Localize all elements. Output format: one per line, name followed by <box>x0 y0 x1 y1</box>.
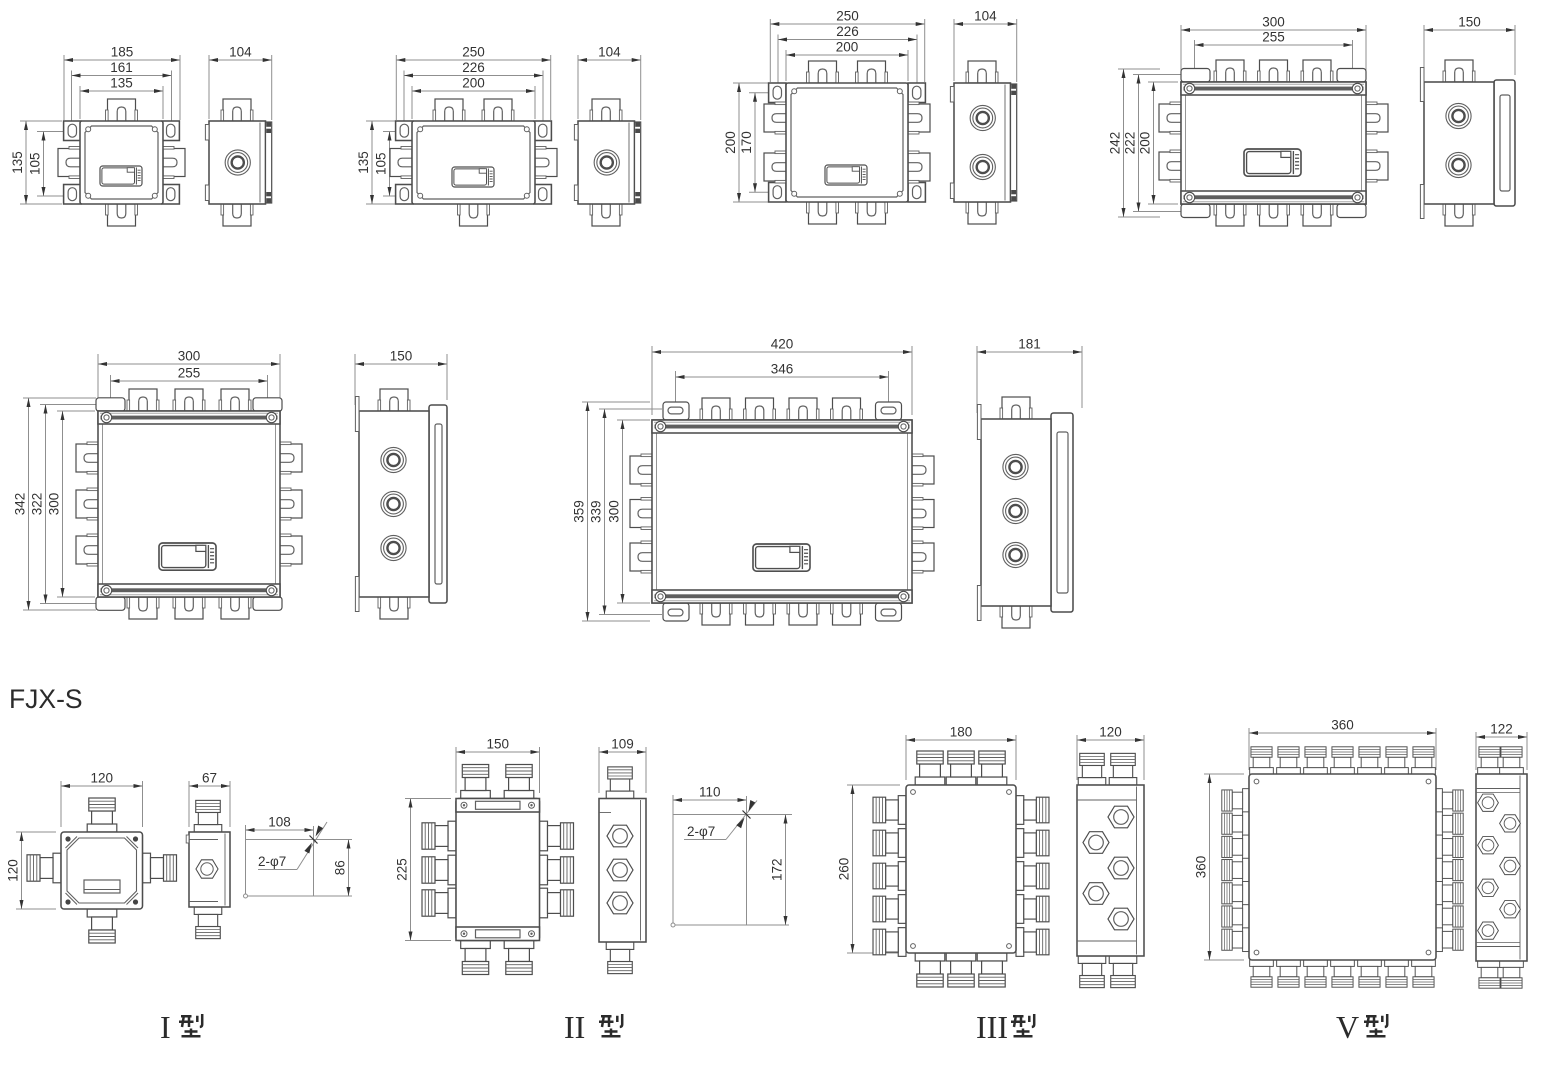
svg-text:181: 181 <box>1018 337 1041 352</box>
svg-text:346: 346 <box>771 362 794 377</box>
svg-text:250: 250 <box>836 9 859 24</box>
svg-text:104: 104 <box>229 45 252 60</box>
svg-text:172: 172 <box>770 858 785 881</box>
svg-text:255: 255 <box>178 366 201 381</box>
svg-text:200: 200 <box>723 131 738 154</box>
svg-text:161: 161 <box>110 60 133 75</box>
svg-text:120: 120 <box>90 771 113 786</box>
svg-text:200: 200 <box>462 76 485 91</box>
svg-text:300: 300 <box>178 349 201 364</box>
svg-text:300: 300 <box>47 493 62 516</box>
svg-text:135: 135 <box>356 151 371 174</box>
svg-text:2-φ7: 2-φ7 <box>258 854 286 869</box>
svg-text:360: 360 <box>1194 856 1209 879</box>
svg-text:260: 260 <box>837 858 852 881</box>
svg-text:67: 67 <box>202 771 217 786</box>
svg-text:V: V <box>1336 1009 1359 1045</box>
svg-text:222: 222 <box>1123 132 1138 155</box>
svg-text:225: 225 <box>395 858 410 881</box>
svg-text:226: 226 <box>462 60 485 75</box>
svg-text:110: 110 <box>699 785 721 800</box>
svg-text:105: 105 <box>28 152 43 175</box>
svg-text:2-φ7: 2-φ7 <box>687 824 715 839</box>
svg-text:108: 108 <box>268 815 291 830</box>
svg-text:339: 339 <box>589 500 604 523</box>
svg-text:FJX-S: FJX-S <box>9 684 83 714</box>
svg-text:122: 122 <box>1490 722 1513 737</box>
svg-text:104: 104 <box>974 9 997 24</box>
svg-text:359: 359 <box>572 500 587 523</box>
svg-text:135: 135 <box>110 76 133 91</box>
svg-text:360: 360 <box>1331 718 1354 733</box>
svg-text:300: 300 <box>1262 15 1285 30</box>
svg-text:255: 255 <box>1262 30 1285 45</box>
svg-text:170: 170 <box>739 131 754 154</box>
svg-text:185: 185 <box>111 45 134 60</box>
svg-text:135: 135 <box>10 151 25 174</box>
svg-text:300: 300 <box>607 500 622 523</box>
svg-text:III: III <box>976 1009 1008 1045</box>
svg-text:150: 150 <box>390 349 413 364</box>
svg-text:109: 109 <box>611 737 634 752</box>
svg-text:226: 226 <box>836 24 859 39</box>
svg-text:105: 105 <box>374 152 389 175</box>
svg-text:420: 420 <box>771 337 794 352</box>
svg-text:250: 250 <box>462 45 485 60</box>
svg-text:200: 200 <box>836 40 859 55</box>
svg-text:I: I <box>160 1009 171 1045</box>
svg-text:242: 242 <box>1108 132 1123 155</box>
svg-text:86: 86 <box>333 860 348 875</box>
svg-text:322: 322 <box>30 493 45 516</box>
svg-text:150: 150 <box>1458 15 1481 30</box>
svg-text:150: 150 <box>486 737 509 752</box>
svg-text:342: 342 <box>13 493 28 516</box>
svg-text:120: 120 <box>1099 725 1122 740</box>
svg-text:II: II <box>564 1009 585 1045</box>
svg-text:180: 180 <box>950 725 973 740</box>
svg-text:120: 120 <box>6 859 21 882</box>
svg-text:200: 200 <box>1138 132 1153 155</box>
svg-text:104: 104 <box>598 45 621 60</box>
